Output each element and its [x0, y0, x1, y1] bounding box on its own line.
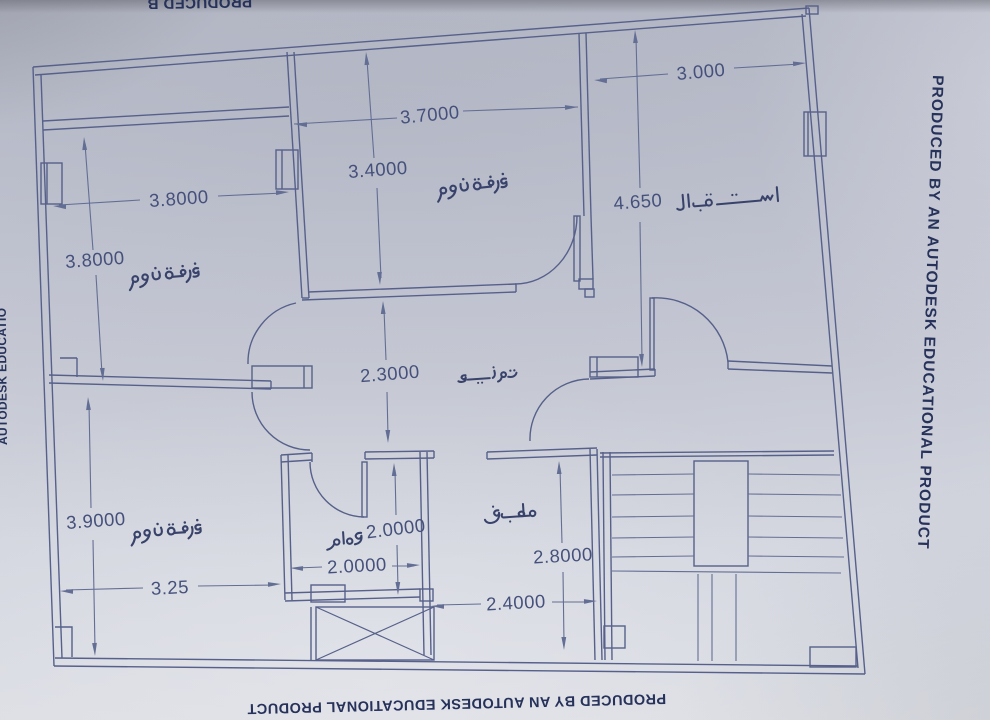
- svg-text:3.9000: 3.9000: [65, 508, 126, 533]
- svg-text:3.000: 3.000: [676, 59, 726, 84]
- svg-text:PRODUCED B: PRODUCED B: [147, 0, 252, 12]
- svg-text:2.0000: 2.0000: [327, 553, 388, 577]
- svg-text:3.7000: 3.7000: [399, 101, 460, 128]
- svg-text:PRODUCED BY AN AUTODESK EDUCAT: PRODUCED BY AN AUTODESK EDUCATIONAL PROD…: [914, 75, 946, 550]
- svg-text:2.0000: 2.0000: [365, 514, 427, 542]
- svg-text:3.25: 3.25: [150, 576, 189, 599]
- svg-text:3.4000: 3.4000: [347, 157, 408, 182]
- svg-text:3.8000: 3.8000: [148, 186, 209, 211]
- svg-text:PRODUCED BY AN AUTODESK EDUCAT: PRODUCED BY AN AUTODESK EDUCATIONAL PROD…: [247, 690, 666, 716]
- svg-text:4.650: 4.650: [613, 189, 663, 213]
- svg-text:3.8000: 3.8000: [64, 247, 125, 272]
- svg-text:2.4000: 2.4000: [486, 590, 547, 614]
- svg-text:AUTODESK EDUCATIO: AUTODESK EDUCATIO: [0, 308, 10, 445]
- svg-text:2.8000: 2.8000: [533, 543, 594, 567]
- svg-text:2.3000: 2.3000: [359, 361, 420, 387]
